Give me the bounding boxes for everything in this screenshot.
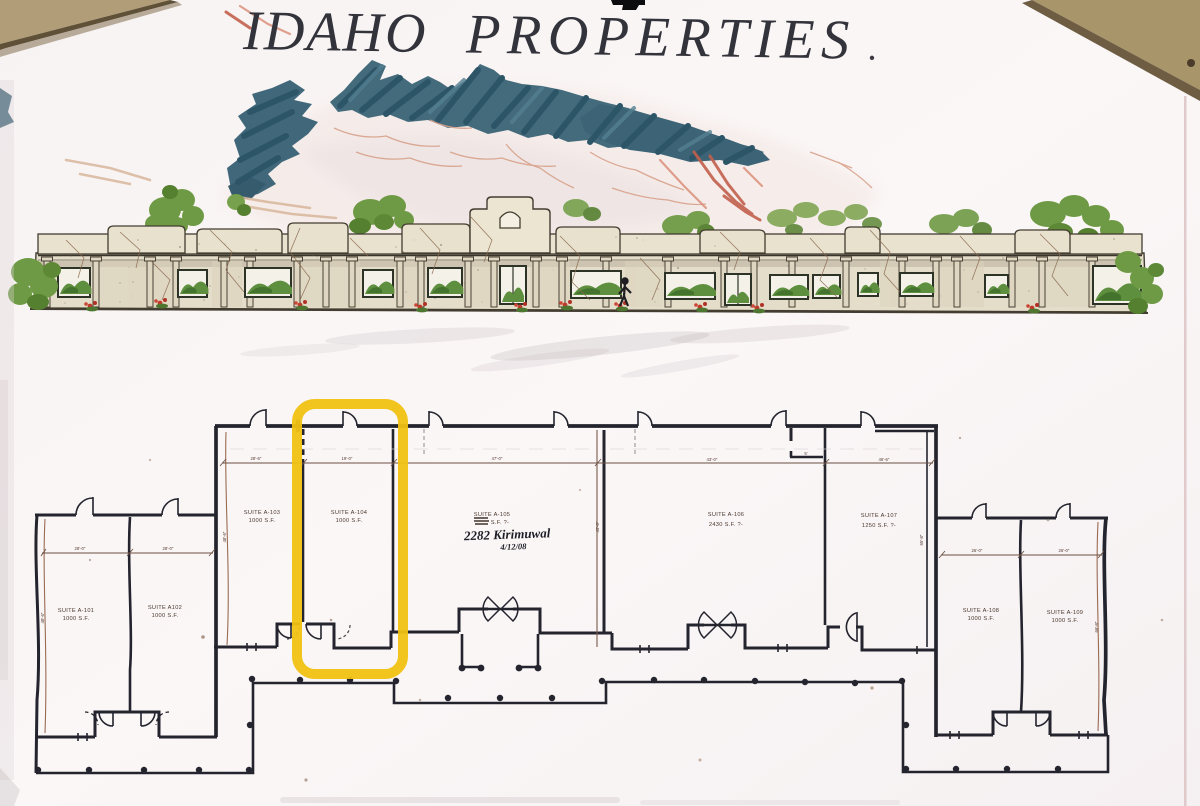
svg-text:1000 S.F.: 1000 S.F. — [968, 616, 995, 622]
svg-text:1250 S.F. ?-: 1250 S.F. ?- — [862, 523, 896, 529]
svg-text:SUITE A-107: SUITE A-107 — [861, 513, 898, 519]
svg-text:26′-0″: 26′-0″ — [1059, 548, 1070, 553]
svg-text:SUITE A-103: SUITE A-103 — [244, 510, 281, 516]
svg-text:28′-0″: 28′-0″ — [163, 546, 174, 551]
svg-text:SUITE A-101: SUITE A-101 — [58, 608, 95, 614]
svg-text:S.F. ?-: S.F. ?- — [491, 520, 510, 526]
svg-text:SUITE A102: SUITE A102 — [148, 605, 182, 611]
svg-text:5′: 5′ — [804, 451, 807, 456]
svg-text:26′-0″: 26′-0″ — [972, 548, 983, 553]
svg-text:47′-0″: 47′-0″ — [492, 456, 503, 461]
svg-text:46′-6″: 46′-6″ — [879, 457, 890, 462]
svg-text:28′-6″: 28′-6″ — [251, 456, 262, 461]
svg-text:28′-0″: 28′-0″ — [75, 546, 86, 551]
svg-text:IDAHO: IDAHO — [242, 0, 428, 65]
svg-text:PROPERTIES: PROPERTIES — [465, 3, 856, 71]
svg-text:SUITE A-109: SUITE A-109 — [1047, 610, 1084, 616]
svg-text:48′-6″: 48′-6″ — [222, 531, 227, 542]
svg-text:43′-0″: 43′-0″ — [707, 457, 718, 462]
svg-text:4/12/08: 4/12/08 — [499, 541, 527, 552]
svg-text:1000 S.F.: 1000 S.F. — [336, 518, 363, 524]
svg-text:65′-8″: 65′-8″ — [919, 534, 924, 545]
svg-text:1000 S.F.: 1000 S.F. — [1052, 618, 1079, 624]
svg-text:1000 S.F.: 1000 S.F. — [63, 616, 90, 622]
svg-text:19′-0″: 19′-0″ — [342, 456, 353, 461]
svg-text:SUITE A-104: SUITE A-104 — [331, 510, 368, 516]
svg-text:2430 S.F. ?-: 2430 S.F. ?- — [709, 522, 743, 528]
svg-text:2282 Kirimuwal: 2282 Kirimuwal — [463, 525, 551, 543]
svg-text:48′-6″: 48′-6″ — [40, 612, 45, 623]
svg-text:66′-8″: 66′-8″ — [1094, 621, 1099, 632]
svg-text:1000 S.F.: 1000 S.F. — [249, 518, 276, 524]
svg-text:SUITE A-108: SUITE A-108 — [963, 608, 1000, 614]
svg-text:43′-8″: 43′-8″ — [595, 521, 600, 532]
svg-text:1000 S.F.: 1000 S.F. — [152, 613, 179, 619]
svg-text:SUITE A-106: SUITE A-106 — [708, 512, 745, 518]
svg-text:SUITE A-105: SUITE A-105 — [474, 512, 511, 518]
